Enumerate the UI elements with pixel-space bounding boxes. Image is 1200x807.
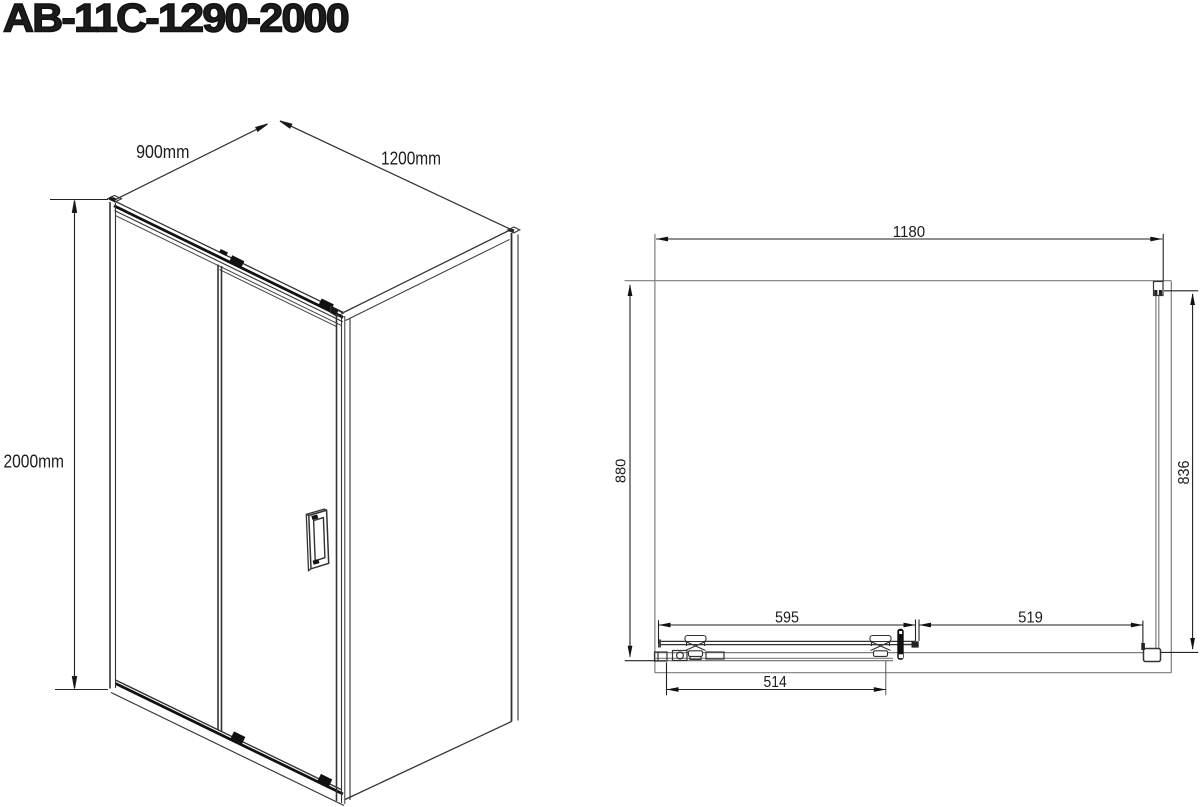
svg-text:519: 519 bbox=[1018, 610, 1043, 627]
svg-text:1200mm: 1200mm bbox=[381, 149, 441, 169]
svg-text:2000mm: 2000mm bbox=[4, 452, 65, 472]
svg-text:900mm: 900mm bbox=[136, 142, 189, 162]
svg-text:595: 595 bbox=[775, 610, 799, 627]
svg-text:1180: 1180 bbox=[893, 224, 926, 241]
svg-text:514: 514 bbox=[764, 674, 787, 691]
svg-text:AB-11C-1290-2000: AB-11C-1290-2000 bbox=[3, 0, 348, 41]
svg-text:836: 836 bbox=[1176, 461, 1193, 485]
svg-text:880: 880 bbox=[612, 459, 629, 484]
